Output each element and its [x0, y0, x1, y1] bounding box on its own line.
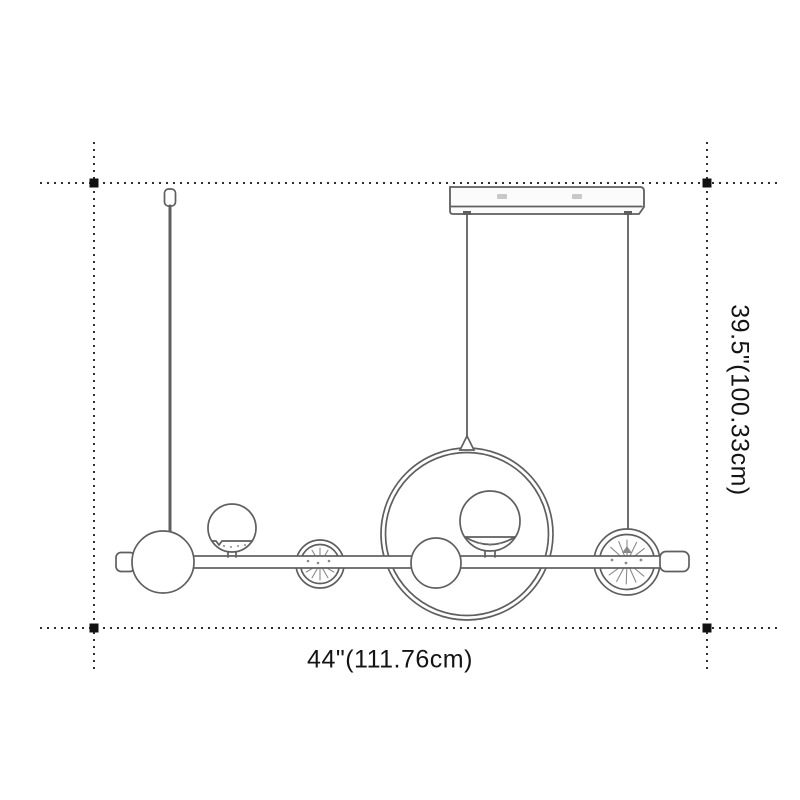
pendant-light-line-drawing	[0, 0, 800, 800]
height-dimension-label: 39.5"(100.33cm)	[725, 304, 754, 495]
width-dimension-label: 44"(111.76cm)	[307, 646, 473, 675]
ceiling-canopy	[450, 187, 644, 215]
glass-globe-left	[208, 504, 256, 557]
ring-wire-connector	[460, 436, 474, 450]
ceiling-loop	[165, 189, 176, 206]
dimension-diagram: 44"(111.76cm) 39.5"(100.33cm)	[0, 0, 800, 800]
corner-marker-bottom-right	[703, 624, 712, 633]
corner-marker-bottom-left	[90, 624, 99, 633]
globe-sphere-middle	[411, 538, 461, 588]
corner-marker-top-right	[703, 179, 712, 188]
rod-end-cap-right	[660, 552, 689, 572]
glass-globe-center	[460, 491, 520, 557]
corner-marker-top-left	[90, 179, 99, 188]
canopy-screw-left	[497, 194, 507, 199]
canopy-screw-right	[572, 194, 582, 199]
globe-sphere-left	[132, 531, 194, 593]
left-hanging-rod	[165, 189, 176, 536]
